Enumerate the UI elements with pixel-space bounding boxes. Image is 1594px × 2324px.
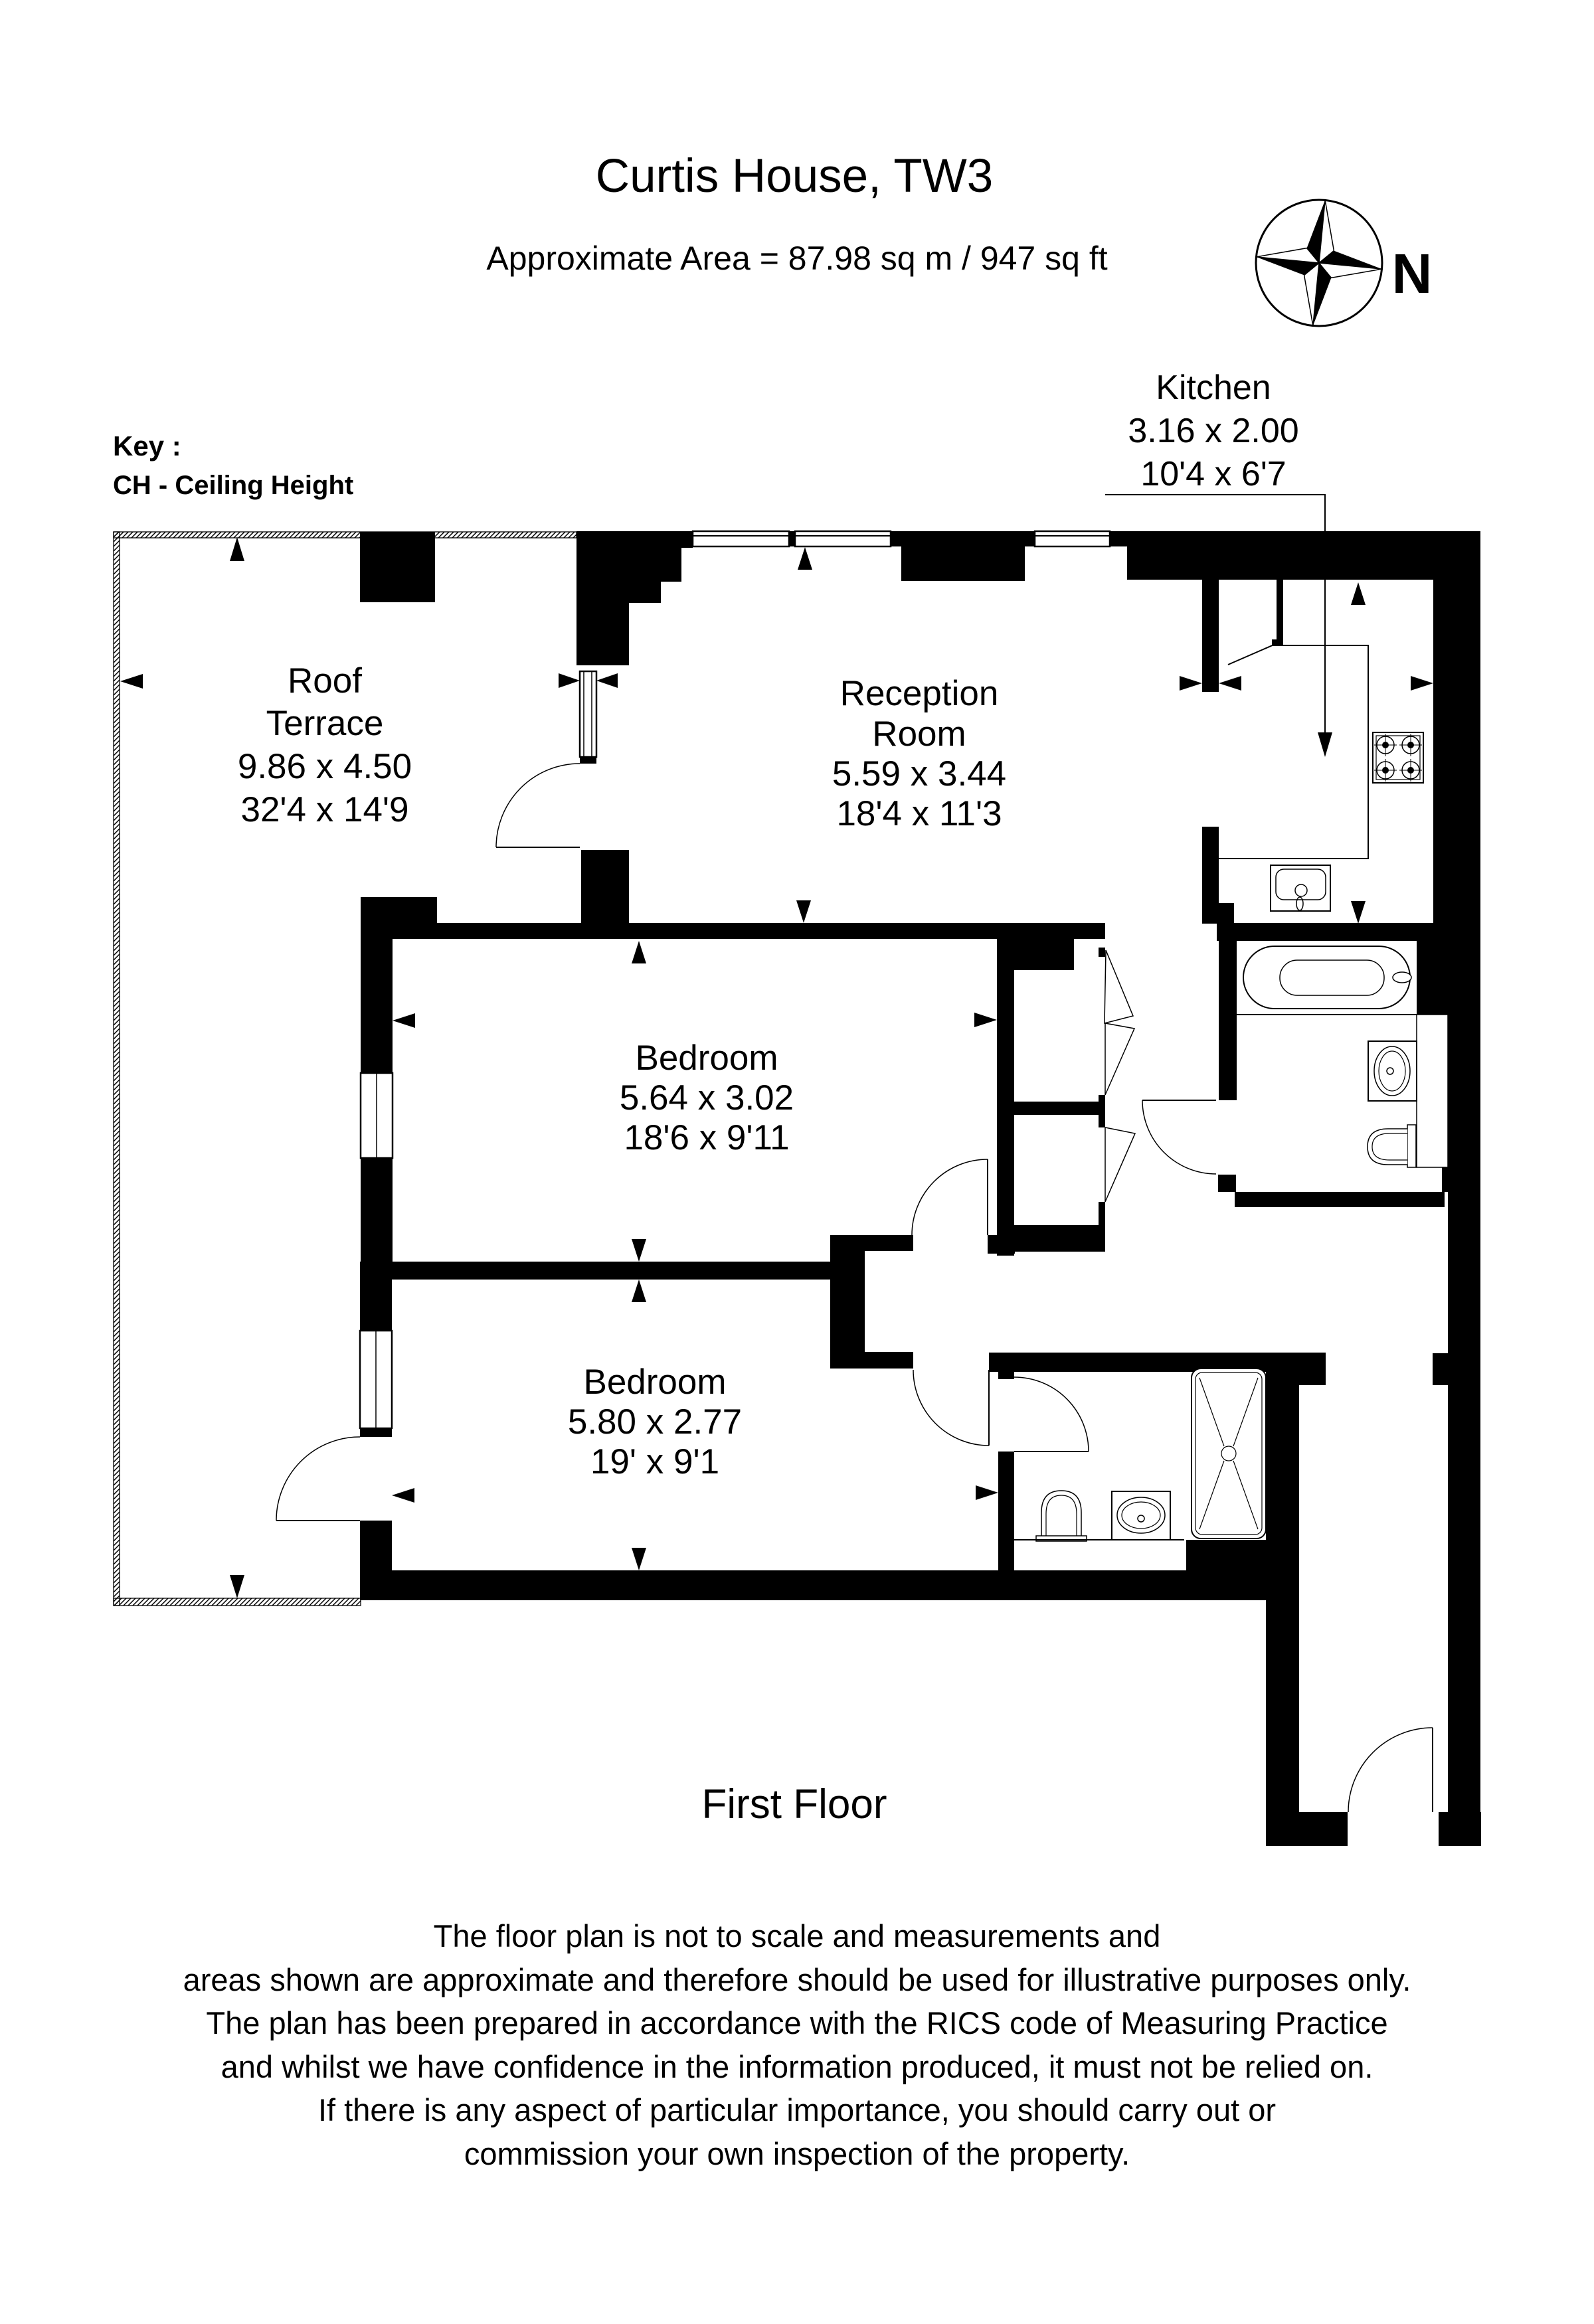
svg-text:Roof: Roof [288, 661, 362, 701]
svg-text:9.86 x 4.50: 9.86 x 4.50 [238, 747, 412, 786]
svg-text:commission your own inspection: commission your own inspection of the pr… [464, 2136, 1130, 2171]
svg-text:19' x 9'1: 19' x 9'1 [590, 1442, 719, 1481]
svg-text:Curtis House, TW3: Curtis House, TW3 [596, 150, 993, 203]
svg-text:5.64 x 3.02: 5.64 x 3.02 [620, 1078, 794, 1118]
svg-text:3.16 x 2.00: 3.16 x 2.00 [1128, 412, 1298, 450]
svg-text:The floor plan is not to scale: The floor plan is not to scale and measu… [434, 1918, 1161, 1953]
svg-text:If there is any aspect of part: If there is any aspect of particular imp… [318, 2092, 1276, 2127]
svg-text:Room: Room [872, 714, 966, 754]
svg-text:5.59 x 3.44: 5.59 x 3.44 [832, 754, 1006, 793]
svg-text:First Floor: First Floor [702, 1782, 887, 1827]
svg-text:The plan has been prepared in: The plan has been prepared in accordance… [206, 2005, 1387, 2040]
svg-text:areas shown are approximate an: areas shown are approximate and therefor… [183, 1962, 1411, 1997]
svg-text:5.80 x 2.77: 5.80 x 2.77 [568, 1402, 742, 1442]
svg-text:18'4 x 11'3: 18'4 x 11'3 [836, 794, 1002, 833]
svg-text:Terrace: Terrace [266, 704, 384, 743]
svg-text:Bedroom: Bedroom [635, 1038, 778, 1078]
svg-text:Reception: Reception [840, 674, 999, 713]
svg-text:10'4 x 6'7: 10'4 x 6'7 [1140, 455, 1286, 493]
svg-text:CH - Ceiling Height: CH - Ceiling Height [113, 471, 353, 500]
svg-text:Key :: Key : [113, 430, 181, 461]
svg-text:32'4 x 14'9: 32'4 x 14'9 [240, 790, 408, 829]
svg-text:Kitchen: Kitchen [1156, 369, 1271, 407]
svg-text:Bedroom: Bedroom [583, 1363, 726, 1402]
svg-text:Approximate Area = 87.98 sq m: Approximate Area = 87.98 sq m / 947 sq f… [486, 240, 1107, 277]
svg-text:18'6 x 9'11: 18'6 x 9'11 [624, 1118, 789, 1157]
svg-text:and whilst we have confidence: and whilst we have confidence in the inf… [221, 2049, 1373, 2084]
svg-text:N: N [1392, 242, 1433, 305]
